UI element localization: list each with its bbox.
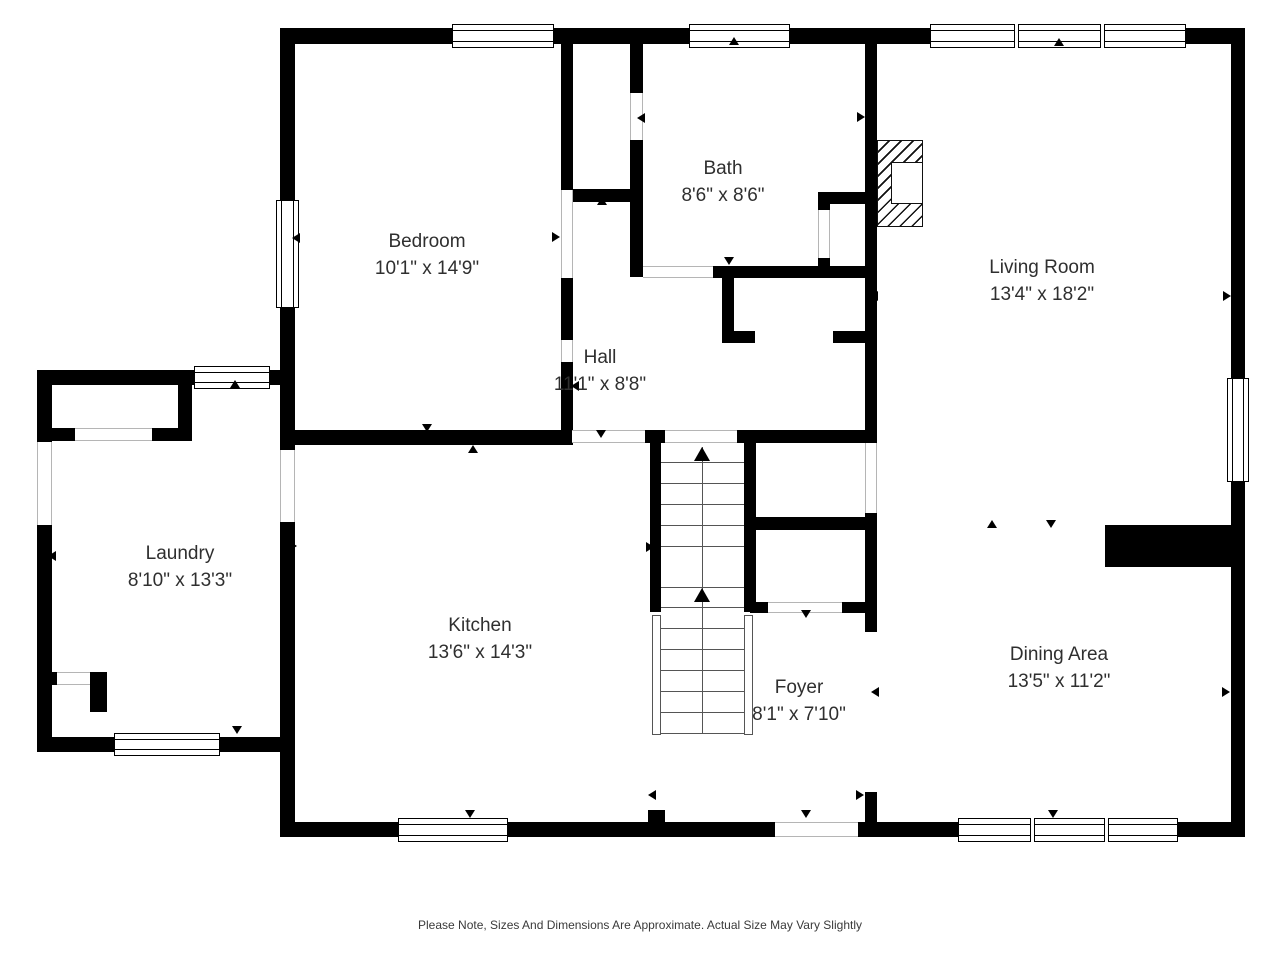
wall bbox=[865, 42, 877, 443]
door-opening bbox=[75, 428, 152, 441]
door-opening bbox=[865, 443, 877, 513]
door-opening bbox=[643, 266, 713, 278]
arrow-marker-icon bbox=[465, 810, 475, 818]
window-sash bbox=[689, 30, 790, 42]
arrow-marker-icon bbox=[423, 36, 433, 44]
wall bbox=[865, 513, 877, 632]
room-label-hall: Hall11'1" x 8'8" bbox=[554, 344, 646, 398]
wall bbox=[37, 428, 75, 441]
room-label-bath: Bath8'6" x 8'6" bbox=[681, 155, 764, 209]
arrow-marker-icon bbox=[1223, 291, 1231, 301]
arrow-marker-icon bbox=[232, 726, 242, 734]
room-name: Hall bbox=[554, 344, 646, 371]
arrow-marker-icon bbox=[648, 790, 656, 800]
window-mullion bbox=[1030, 818, 1035, 842]
wall bbox=[280, 522, 295, 822]
wall bbox=[37, 370, 197, 385]
wall bbox=[842, 602, 871, 613]
arrow-marker-icon bbox=[857, 112, 865, 122]
wall bbox=[630, 42, 643, 93]
wall bbox=[865, 792, 877, 837]
room-dimensions: 10'1" x 14'9" bbox=[375, 255, 479, 282]
wall bbox=[37, 737, 114, 752]
wall bbox=[650, 443, 661, 612]
wall bbox=[818, 192, 871, 204]
arrow-marker-icon bbox=[1048, 810, 1058, 818]
room-name: Bath bbox=[681, 155, 764, 182]
arrow-marker-icon bbox=[292, 233, 300, 243]
arrow-marker-icon bbox=[230, 380, 240, 388]
wall bbox=[630, 140, 643, 277]
arrow-marker-icon bbox=[597, 197, 607, 205]
window-sash bbox=[114, 739, 220, 750]
window-sash bbox=[958, 824, 1178, 836]
arrow-marker-icon bbox=[870, 291, 878, 301]
room-dimensions: 13'4" x 18'2" bbox=[989, 281, 1095, 308]
wall bbox=[90, 672, 107, 712]
wall bbox=[561, 42, 573, 190]
room-dimensions: 13'6" x 14'3" bbox=[428, 639, 532, 666]
room-name: Dining Area bbox=[1008, 641, 1111, 668]
arrow-marker-icon bbox=[801, 810, 811, 818]
window bbox=[958, 818, 1178, 842]
window bbox=[1227, 378, 1249, 482]
room-label-living-room: Living Room13'4" x 18'2" bbox=[989, 254, 1095, 308]
room-dimensions: 8'10" x 13'3" bbox=[128, 567, 232, 594]
stair-up-arrow-icon bbox=[694, 588, 710, 602]
room-label-bedroom: Bedroom10'1" x 14'9" bbox=[375, 228, 479, 282]
arrow-marker-icon bbox=[596, 430, 606, 438]
arrow-marker-icon bbox=[801, 610, 811, 618]
disclaimer-text: Please Note, Sizes And Dimensions Are Ap… bbox=[0, 918, 1280, 932]
door-opening bbox=[775, 822, 858, 837]
arrow-marker-icon bbox=[987, 520, 997, 528]
room-dimensions: 8'6" x 8'6" bbox=[681, 182, 764, 209]
wall bbox=[1177, 822, 1245, 837]
arrow-marker-icon bbox=[552, 232, 560, 242]
wall bbox=[561, 278, 573, 340]
wall bbox=[818, 258, 830, 272]
room-label-dining-area: Dining Area13'5" x 11'2" bbox=[1008, 641, 1111, 695]
wall bbox=[722, 331, 755, 343]
arrow-marker-icon bbox=[729, 37, 739, 45]
wall bbox=[220, 737, 295, 752]
arrow-marker-icon bbox=[422, 424, 432, 432]
arrow-marker-icon bbox=[856, 790, 864, 800]
wall bbox=[280, 430, 572, 445]
window-mullion bbox=[1104, 818, 1109, 842]
arrow-marker-icon bbox=[1054, 38, 1064, 46]
window bbox=[398, 818, 508, 842]
room-name: Bedroom bbox=[375, 228, 479, 255]
window-mullion bbox=[1014, 24, 1019, 48]
window bbox=[276, 200, 299, 308]
stair-rail bbox=[652, 615, 661, 735]
floorplan-canvas: Bedroom10'1" x 14'9"Bath8'6" x 8'6"Livin… bbox=[0, 0, 1280, 960]
door-opening bbox=[561, 190, 573, 278]
arrow-marker-icon bbox=[1046, 520, 1056, 528]
wall bbox=[645, 430, 665, 443]
floorplan: Bedroom10'1" x 14'9"Bath8'6" x 8'6"Livin… bbox=[0, 0, 1280, 960]
fireplace-firebox bbox=[891, 162, 923, 204]
wall bbox=[1105, 525, 1231, 567]
room-name: Kitchen bbox=[428, 612, 532, 639]
wall bbox=[750, 517, 871, 530]
window bbox=[452, 24, 554, 48]
arrow-marker-icon bbox=[646, 542, 654, 552]
door-opening bbox=[57, 672, 90, 685]
door-opening bbox=[818, 210, 830, 258]
door-opening bbox=[37, 442, 52, 525]
window-sash bbox=[1232, 378, 1244, 482]
arrow-marker-icon bbox=[724, 257, 734, 265]
wall bbox=[1231, 482, 1245, 837]
wall bbox=[713, 266, 875, 278]
room-dimensions: 8'1" x 7'10" bbox=[752, 701, 846, 728]
room-label-foyer: Foyer8'1" x 7'10" bbox=[752, 674, 846, 728]
wall bbox=[648, 810, 665, 822]
room-label-laundry: Laundry8'10" x 13'3" bbox=[128, 540, 232, 594]
room-name: Living Room bbox=[989, 254, 1095, 281]
room-dimensions: 13'5" x 11'2" bbox=[1008, 668, 1111, 695]
window-sash bbox=[398, 824, 508, 836]
arrow-marker-icon bbox=[468, 445, 478, 453]
door-opening bbox=[572, 430, 645, 443]
wall bbox=[268, 370, 287, 385]
arrow-marker-icon bbox=[1222, 687, 1230, 697]
wall bbox=[750, 602, 768, 613]
arrow-marker-icon bbox=[289, 541, 297, 551]
window-sash bbox=[281, 200, 294, 308]
stair-tread bbox=[661, 733, 744, 734]
wall bbox=[1231, 28, 1245, 378]
wall bbox=[507, 822, 775, 837]
wall bbox=[280, 822, 400, 837]
door-opening bbox=[280, 450, 295, 522]
wall bbox=[152, 428, 192, 441]
room-dimensions: 11'1" x 8'8" bbox=[554, 371, 646, 398]
arrow-marker-icon bbox=[48, 551, 56, 561]
room-name: Laundry bbox=[128, 540, 232, 567]
stair-up-arrow-icon bbox=[694, 447, 710, 461]
window bbox=[689, 24, 790, 48]
door-opening bbox=[665, 430, 737, 443]
window bbox=[114, 733, 220, 756]
wall bbox=[737, 430, 877, 443]
window-sash bbox=[452, 30, 554, 42]
wall bbox=[280, 42, 295, 202]
arrow-marker-icon bbox=[871, 687, 879, 697]
arrow-marker-icon bbox=[280, 549, 288, 559]
window-mullion bbox=[1100, 24, 1105, 48]
wall bbox=[37, 672, 57, 685]
room-label-kitchen: Kitchen13'6" x 14'3" bbox=[428, 612, 532, 666]
arrow-marker-icon bbox=[637, 113, 645, 123]
room-name: Foyer bbox=[752, 674, 846, 701]
